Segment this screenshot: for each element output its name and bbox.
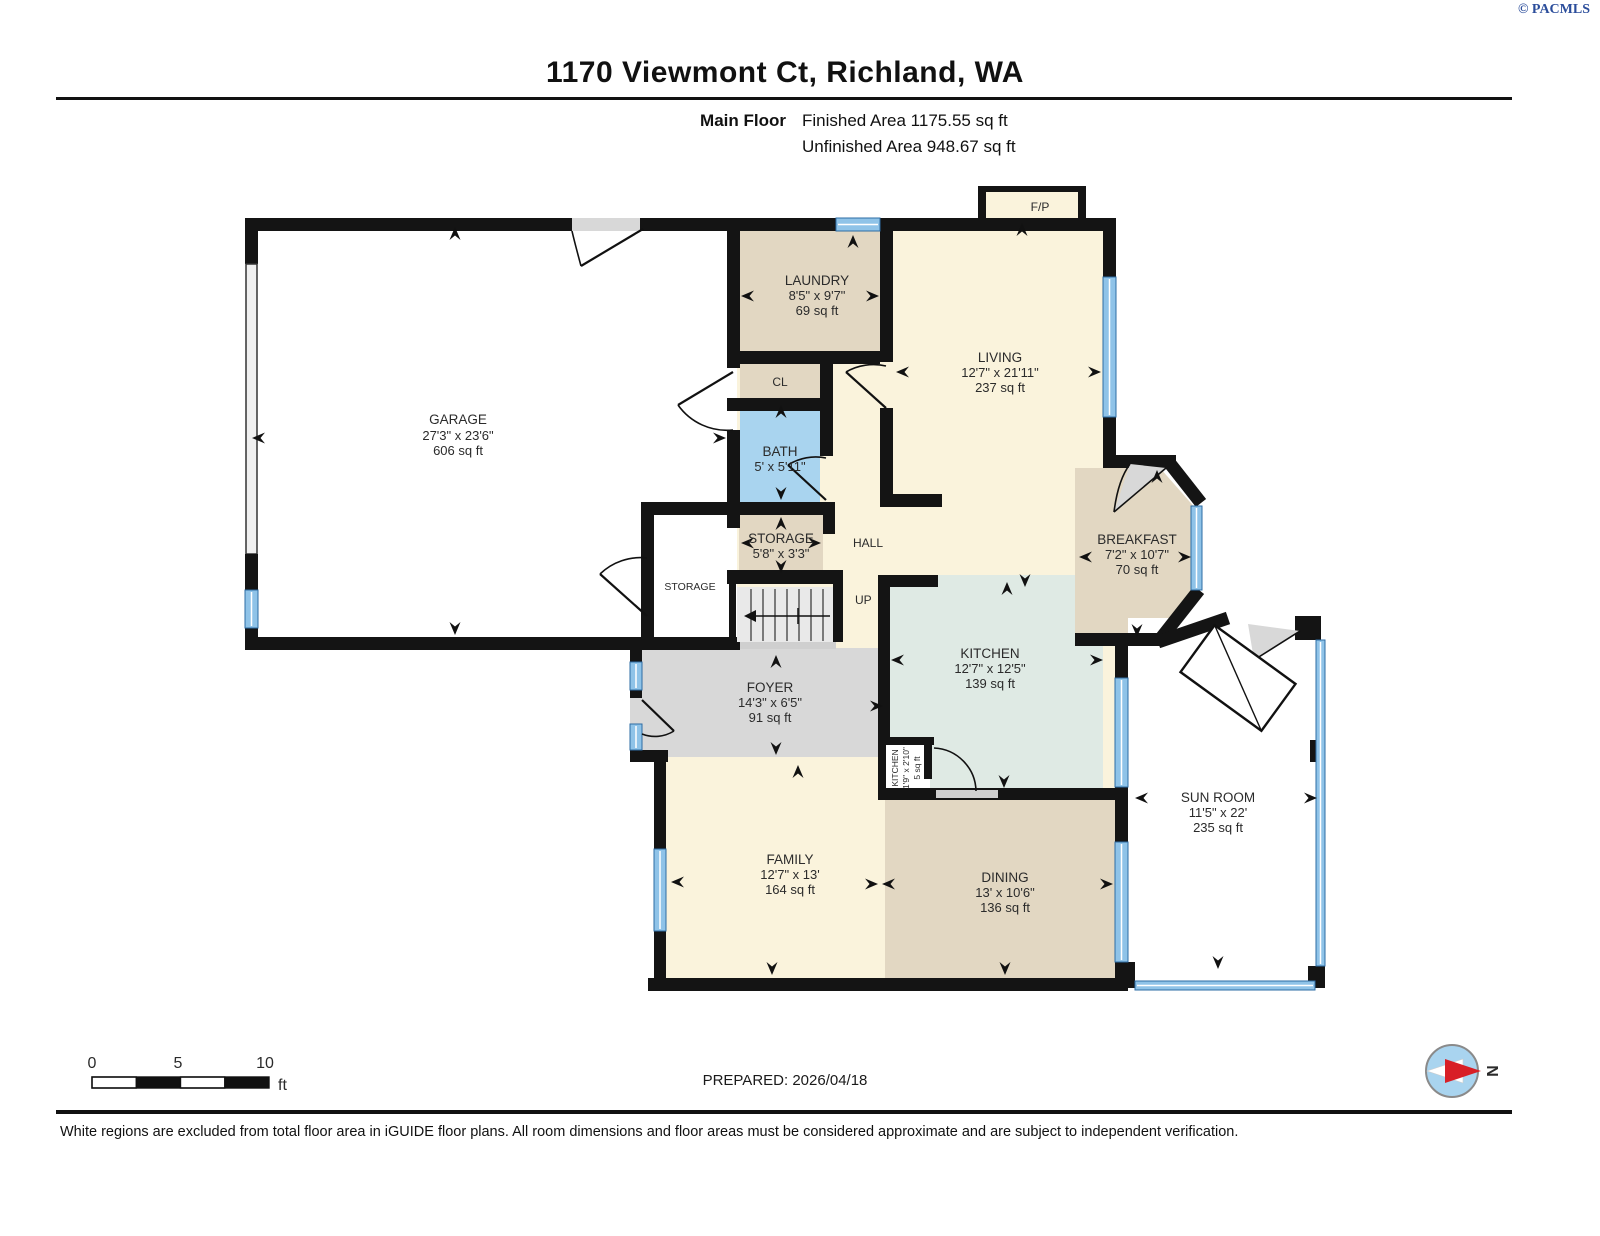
svg-text:BATH: BATH [762, 444, 797, 459]
svg-text:LIVING: LIVING [978, 350, 1022, 365]
storage2-label: STORAGE [664, 581, 715, 593]
svg-text:5: 5 [174, 1055, 183, 1072]
svg-text:10: 10 [256, 1055, 274, 1072]
room-dining: DINING 13' x 10'6" 136 sq ft [975, 870, 1035, 915]
svg-text:12'7" x 12'5": 12'7" x 12'5" [954, 661, 1026, 676]
svg-text:237 sq ft: 237 sq ft [975, 380, 1025, 395]
svg-text:139 sq ft: 139 sq ft [965, 676, 1015, 691]
svg-text:235 sq ft: 235 sq ft [1193, 820, 1243, 835]
svg-text:LAUNDRY: LAUNDRY [785, 273, 849, 288]
room-storage: STORAGE 5'8" x 3'3" [748, 531, 814, 561]
svg-text:13' x 10'6": 13' x 10'6" [975, 885, 1035, 900]
hall-label: HALL [853, 536, 883, 550]
svg-text:5 sq ft: 5 sq ft [912, 756, 922, 780]
svg-text:7'2" x 10'7": 7'2" x 10'7" [1105, 547, 1169, 562]
svg-text:GARAGE: GARAGE [429, 412, 487, 427]
svg-text:KITCHEN: KITCHEN [960, 646, 1019, 661]
svg-text:91 sq ft: 91 sq ft [749, 710, 792, 725]
svg-text:11'5" x 22': 11'5" x 22' [1189, 805, 1248, 820]
svg-text:5' x 5'11": 5' x 5'11" [754, 459, 806, 474]
svg-text:DINING: DINING [981, 870, 1028, 885]
svg-text:KITCHEN: KITCHEN [890, 749, 900, 786]
svg-text:12'7" x 13': 12'7" x 13' [760, 867, 819, 882]
footer-divider [56, 1110, 1512, 1114]
stairs [737, 587, 833, 642]
svg-text:606 sq ft: 606 sq ft [433, 443, 483, 458]
svg-text:SUN ROOM: SUN ROOM [1181, 790, 1255, 805]
up-label: UP [855, 593, 872, 607]
closet-label: CL [772, 375, 788, 389]
room-family: FAMILY 12'7" x 13' 164 sq ft [760, 852, 819, 897]
svg-text:14'3" x 6'5": 14'3" x 6'5" [738, 695, 802, 710]
svg-text:70 sq ft: 70 sq ft [1116, 562, 1159, 577]
svg-text:136 sq ft: 136 sq ft [980, 900, 1030, 915]
svg-text:FOYER: FOYER [747, 680, 794, 695]
svg-text:1'9" x 2'10": 1'9" x 2'10" [901, 747, 911, 789]
svg-text:BREAKFAST: BREAKFAST [1097, 532, 1177, 547]
compass-icon: N [1426, 1045, 1500, 1097]
svg-text:STORAGE: STORAGE [748, 531, 814, 546]
svg-text:8'5" x 9'7": 8'5" x 9'7" [789, 288, 846, 303]
svg-text:5'8" x 3'3": 5'8" x 3'3" [753, 546, 810, 561]
floor-plan: GARAGE 27'3" x 23'6" 606 sq ft LAUNDRY 8… [0, 0, 1600, 1236]
disclaimer-text: White regions are excluded from total fl… [60, 1124, 1540, 1140]
svg-text:FAMILY: FAMILY [766, 852, 813, 867]
fireplace-label: F/P [1031, 200, 1050, 214]
svg-text:12'7" x 21'11": 12'7" x 21'11" [961, 365, 1039, 380]
svg-text:27'3" x 23'6": 27'3" x 23'6" [422, 428, 494, 443]
svg-text:69 sq ft: 69 sq ft [796, 303, 839, 318]
svg-text:164 sq ft: 164 sq ft [765, 882, 815, 897]
svg-text:0: 0 [88, 1055, 97, 1072]
prepared-date: PREPARED: 2026/04/18 [0, 1072, 1570, 1089]
